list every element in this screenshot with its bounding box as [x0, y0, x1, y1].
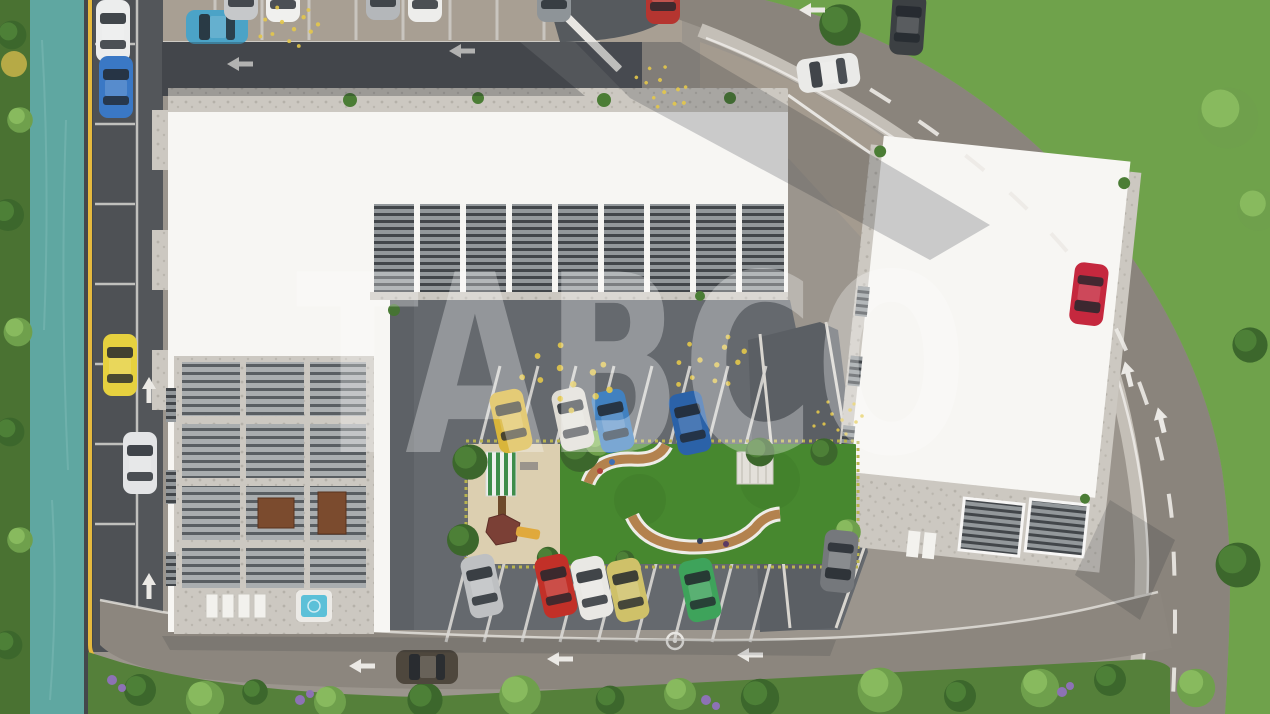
car-left-parked-white	[96, 0, 130, 62]
car-top-partial-silver	[224, 0, 258, 20]
car-top-partial-gray	[537, 0, 571, 22]
car-street-dark	[889, 0, 927, 56]
terrace-furniture-1	[258, 498, 294, 528]
car-top-partial-white-2	[408, 0, 442, 22]
person-4	[723, 541, 729, 547]
car-left-parked-blue	[99, 56, 133, 118]
person-3	[697, 538, 703, 544]
site-plan-render: TABCO	[0, 0, 1270, 714]
right-wing-skylight-2	[1025, 499, 1088, 557]
aerial-render: TABCO	[0, 0, 1270, 714]
car-top-partial-white	[266, 0, 300, 22]
left-vegetation	[0, 0, 32, 714]
left-wing-vents	[166, 388, 176, 586]
right-wing-skylight-1	[959, 498, 1024, 556]
hot-tub	[296, 590, 332, 622]
watermark-text: TABCO	[296, 223, 968, 511]
car-bottom-driving	[396, 650, 458, 684]
left-road-lane	[137, 0, 163, 652]
car-ramp-gray	[819, 529, 859, 594]
water-canal	[30, 0, 86, 714]
car-left-driving-white	[123, 432, 157, 494]
car-left-parked-yellow	[103, 334, 137, 396]
car-top-partial-red	[646, 0, 680, 24]
left-wing-edge-steps	[152, 110, 168, 410]
car-top-partial-silver-2	[366, 0, 400, 20]
